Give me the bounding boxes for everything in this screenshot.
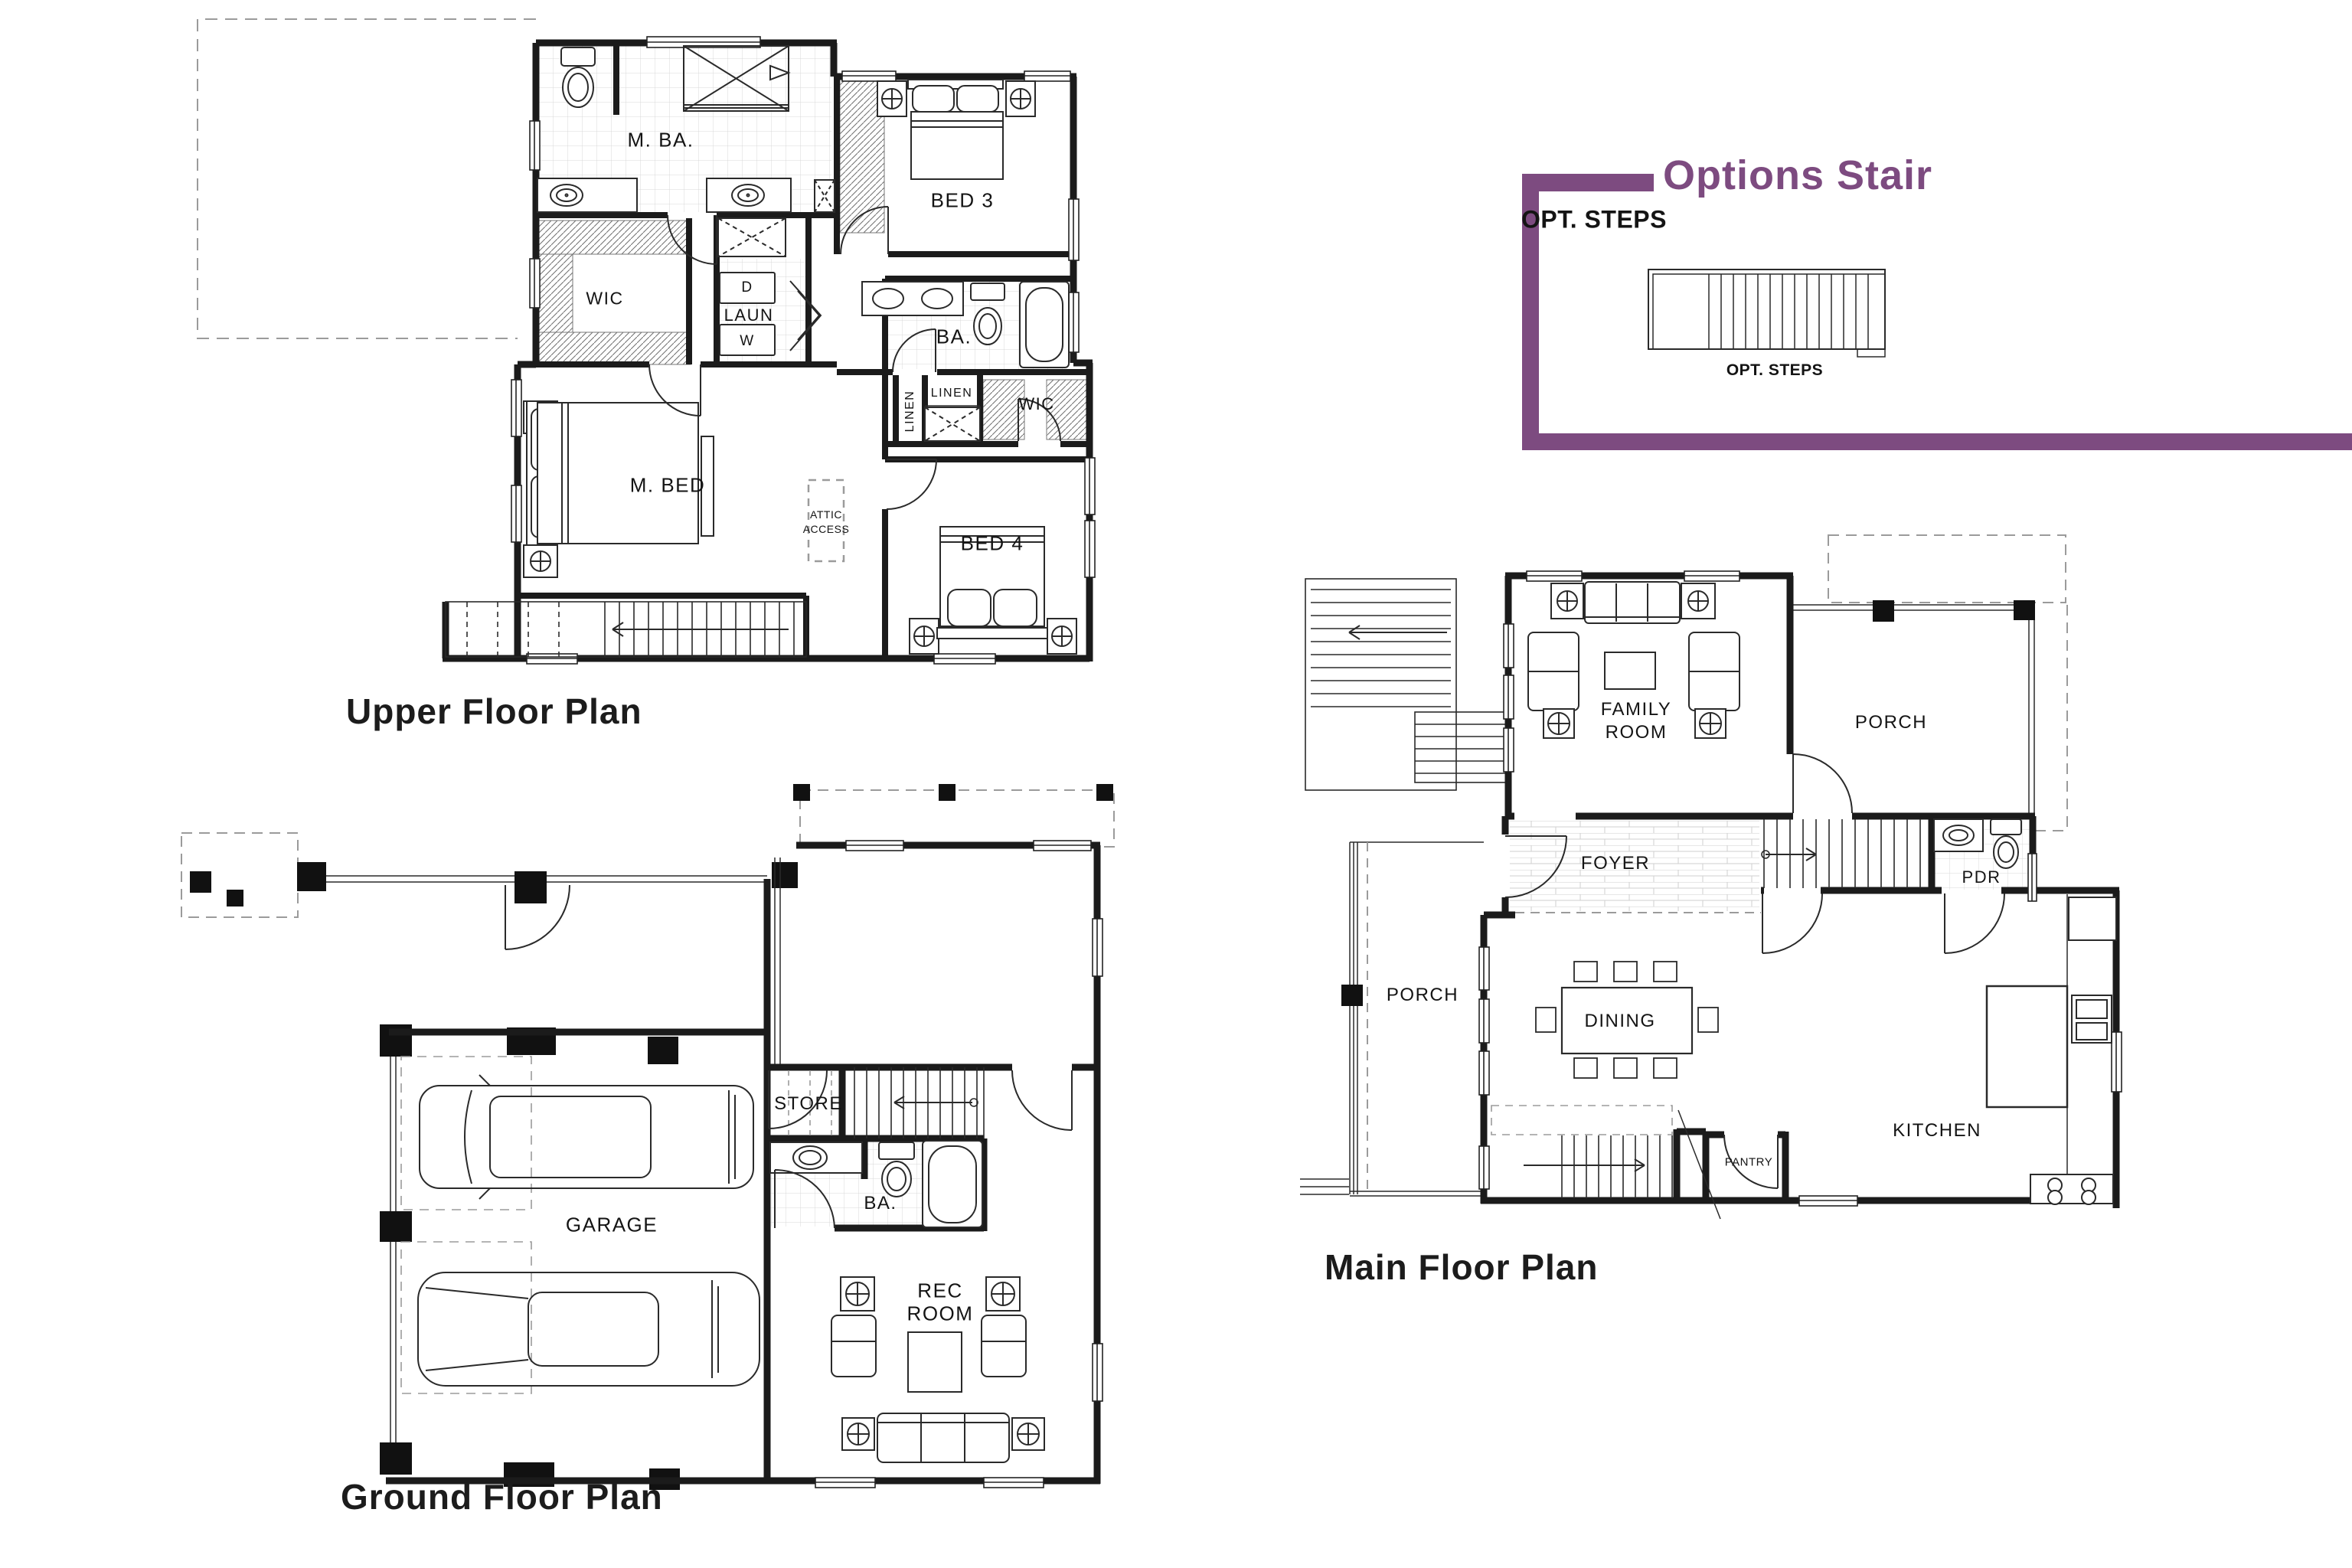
room-label-garage: GARAGE bbox=[566, 1214, 658, 1237]
ground-floor-title: Ground Floor Plan bbox=[341, 1476, 663, 1517]
room-label-dryer: D bbox=[741, 279, 753, 296]
room-label-bed3: BED 3 bbox=[931, 189, 995, 213]
room-label-dining: DINING bbox=[1585, 1011, 1656, 1032]
room-label-ba-ground: BA. bbox=[864, 1193, 897, 1214]
sedan-car bbox=[418, 1272, 759, 1386]
room-label-laundry: LAUN bbox=[724, 305, 774, 325]
room-label-store: STORE bbox=[774, 1093, 843, 1115]
room-label-pantry: PANTRY bbox=[1725, 1156, 1772, 1169]
room-label-family-line2: ROOM bbox=[1606, 722, 1668, 743]
upper-floor-title: Upper Floor Plan bbox=[346, 691, 642, 732]
ground-floor-plan bbox=[181, 784, 1114, 1490]
room-label-ba-upper: BA. bbox=[936, 325, 972, 349]
room-label-linen-horizontal: LINEN bbox=[931, 387, 973, 400]
options-stair-title: Options Stair bbox=[1663, 152, 1932, 199]
floor-plan-sheet: Upper Floor Plan Ground Floor Plan Main … bbox=[0, 0, 2352, 1568]
room-label-rec-line1: REC bbox=[917, 1279, 962, 1303]
room-label-linen-vertical: LINEN bbox=[903, 390, 917, 433]
options-frame-bottom-bar bbox=[1522, 433, 2352, 450]
room-label-pdr: PDR bbox=[1962, 867, 2001, 887]
room-label-attic-line2: ACCESS bbox=[803, 523, 850, 535]
room-label-m-ba: M. BA. bbox=[627, 129, 694, 152]
room-label-kitchen: KITCHEN bbox=[1893, 1120, 1981, 1142]
room-label-bed4: BED 4 bbox=[961, 532, 1024, 556]
room-label-porch-left: PORCH bbox=[1387, 985, 1459, 1006]
room-label-family-line1: FAMILY bbox=[1601, 699, 1672, 720]
room-label-porch-right: PORCH bbox=[1855, 712, 1927, 733]
options-stair-drawing bbox=[1648, 269, 1885, 357]
options-frame-top-bar bbox=[1522, 174, 1654, 191]
room-label-wic-right: WIC bbox=[1018, 394, 1054, 414]
room-label-attic-line1: ATTIC bbox=[810, 508, 842, 521]
suv-car bbox=[420, 1075, 753, 1199]
opt-steps-header: OPT. STEPS bbox=[1521, 206, 1667, 234]
room-label-rec-line2: ROOM bbox=[907, 1302, 974, 1326]
room-label-foyer: FOYER bbox=[1581, 853, 1650, 874]
room-label-washer: W bbox=[740, 333, 754, 350]
room-label-wic-left: WIC bbox=[586, 289, 623, 309]
main-floor-title: Main Floor Plan bbox=[1325, 1246, 1598, 1288]
opt-steps-caption: OPT. STEPS bbox=[1726, 361, 1823, 380]
plan-linework bbox=[0, 0, 2352, 1568]
room-label-m-bed: M. BED bbox=[630, 474, 706, 498]
